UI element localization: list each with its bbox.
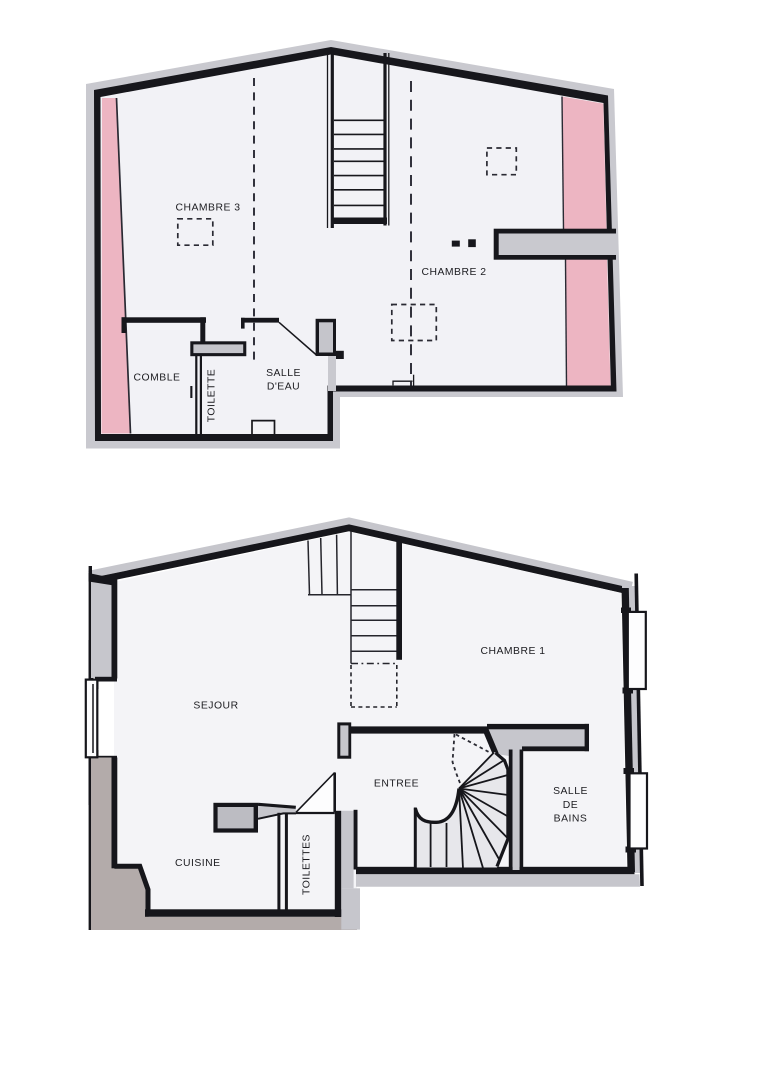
- svg-text:BAINS: BAINS: [554, 813, 588, 824]
- svg-text:D'EAU: D'EAU: [267, 382, 300, 393]
- svg-text:CHAMBRE 3: CHAMBRE 3: [175, 203, 240, 214]
- svg-text:SALLE: SALLE: [553, 786, 588, 797]
- svg-text:COMBLE: COMBLE: [134, 373, 181, 384]
- svg-text:SALLE: SALLE: [266, 368, 301, 379]
- svg-text:TOILETTE: TOILETTE: [207, 369, 218, 422]
- svg-text:CUISINE: CUISINE: [175, 858, 221, 869]
- svg-text:DE: DE: [563, 800, 578, 811]
- svg-text:ENTREE: ENTREE: [374, 779, 419, 790]
- svg-text:TOILETTES: TOILETTES: [302, 834, 313, 895]
- svg-text:SEJOUR: SEJOUR: [193, 701, 238, 712]
- svg-text:CHAMBRE 1: CHAMBRE 1: [480, 646, 545, 657]
- svg-text:CHAMBRE 2: CHAMBRE 2: [421, 267, 486, 278]
